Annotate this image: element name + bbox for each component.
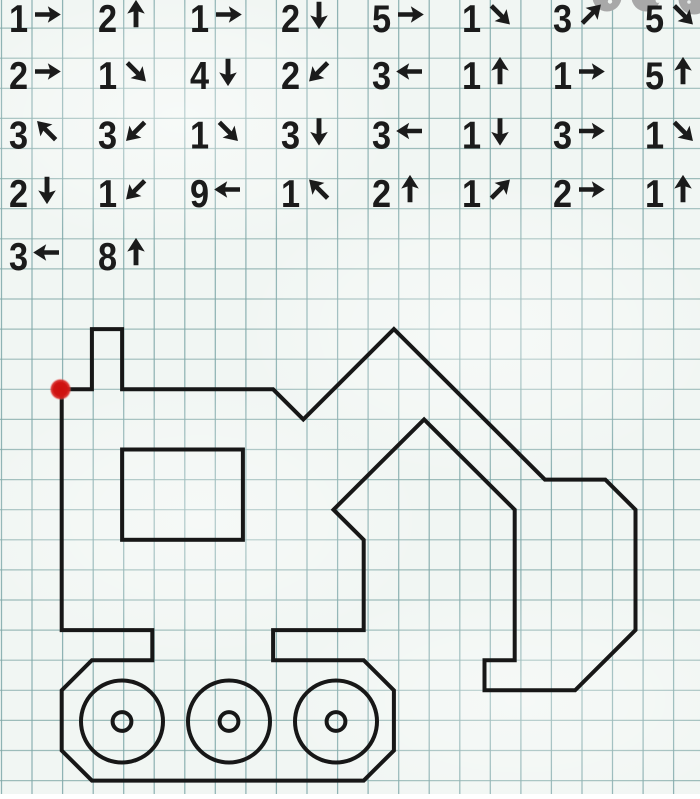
svg-text:1: 1 <box>462 113 481 157</box>
svg-text:3: 3 <box>9 113 28 157</box>
svg-text:3: 3 <box>9 235 28 279</box>
svg-text:3: 3 <box>98 113 117 157</box>
svg-text:1: 1 <box>281 172 300 216</box>
svg-text:3: 3 <box>372 54 391 98</box>
svg-text:3: 3 <box>553 0 572 40</box>
svg-text:1: 1 <box>462 54 481 98</box>
svg-text:1: 1 <box>645 172 664 216</box>
svg-text:2: 2 <box>372 172 391 216</box>
svg-text:1: 1 <box>553 54 572 98</box>
svg-text:9: 9 <box>190 172 209 216</box>
svg-text:1: 1 <box>98 54 117 98</box>
svg-text:4: 4 <box>190 54 210 98</box>
svg-text:2: 2 <box>9 172 28 216</box>
svg-text:5: 5 <box>372 0 391 40</box>
svg-text:1: 1 <box>98 172 117 216</box>
svg-text:2: 2 <box>281 54 300 98</box>
svg-text:2: 2 <box>281 0 300 40</box>
svg-text:1: 1 <box>462 0 481 40</box>
svg-text:5: 5 <box>645 0 664 40</box>
svg-text:1: 1 <box>462 172 481 216</box>
svg-text:2: 2 <box>98 0 117 40</box>
svg-text:3: 3 <box>281 113 300 157</box>
svg-text:1: 1 <box>190 0 209 40</box>
svg-text:3: 3 <box>553 113 572 157</box>
svg-text:5: 5 <box>645 54 664 98</box>
svg-text:3: 3 <box>372 113 391 157</box>
svg-text:2: 2 <box>553 172 572 216</box>
svg-text:1: 1 <box>9 0 28 40</box>
svg-text:1: 1 <box>190 113 209 157</box>
svg-text:8: 8 <box>98 235 117 279</box>
svg-text:2: 2 <box>9 54 28 98</box>
svg-text:1: 1 <box>645 113 664 157</box>
